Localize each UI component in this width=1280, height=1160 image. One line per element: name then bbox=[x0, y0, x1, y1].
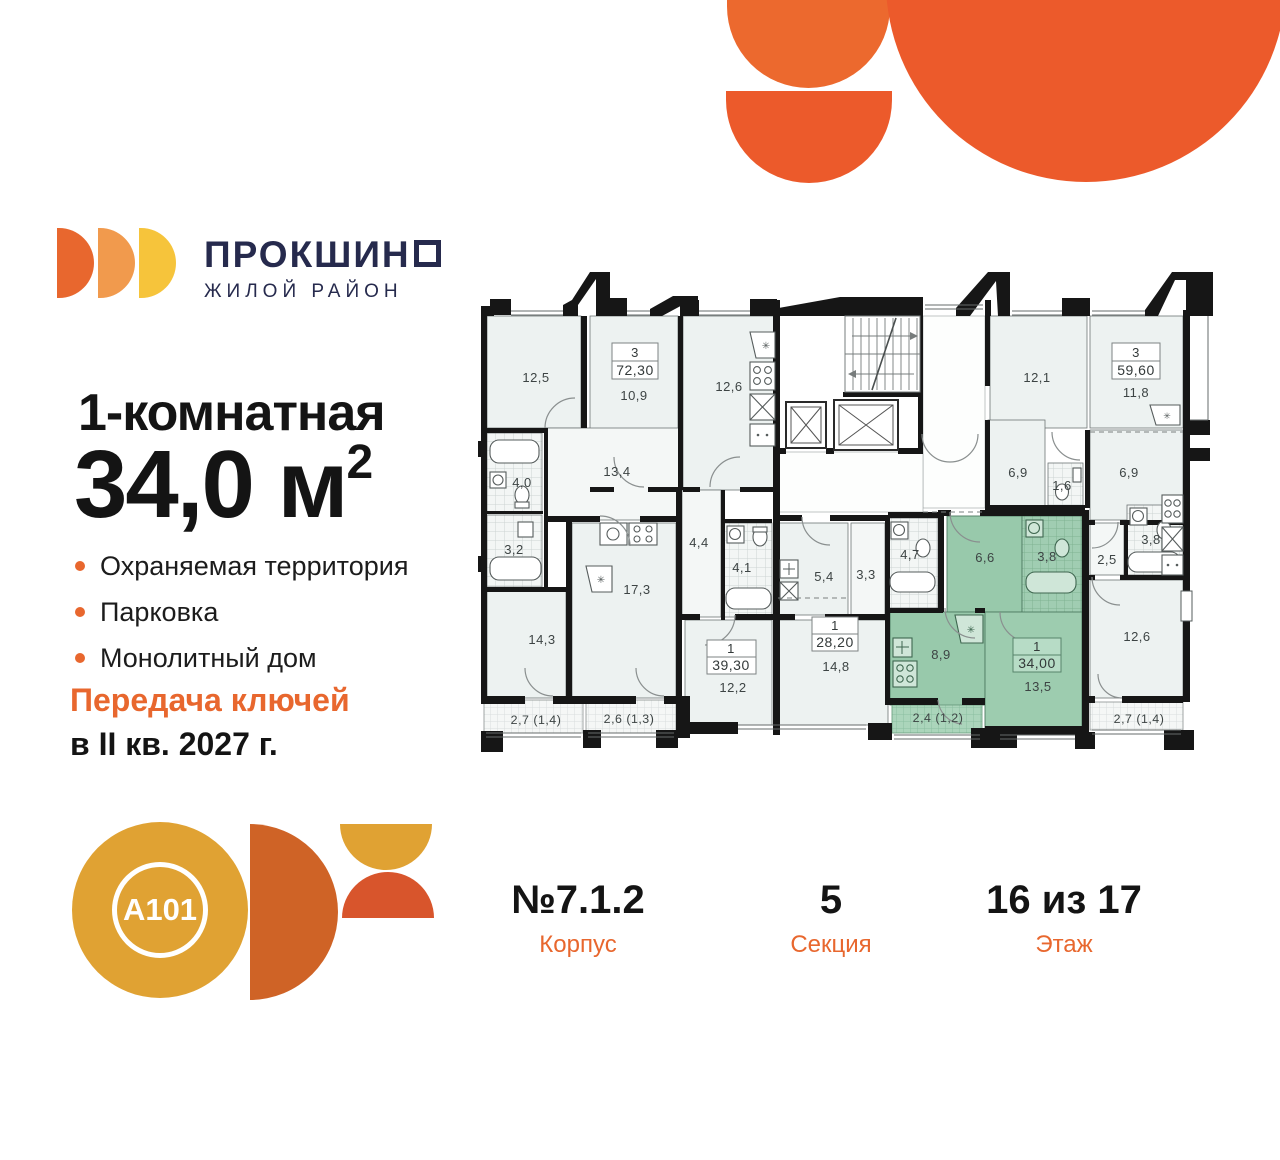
svg-text:2,5: 2,5 bbox=[1097, 552, 1117, 567]
svg-text:3: 3 bbox=[631, 345, 639, 360]
svg-text:12,6: 12,6 bbox=[715, 379, 742, 394]
svg-text:✳: ✳ bbox=[597, 575, 605, 586]
svg-text:1: 1 bbox=[1033, 639, 1041, 654]
a101-bowl-shape bbox=[340, 824, 432, 870]
logo-d-yellow bbox=[139, 228, 176, 298]
svg-text:1: 1 bbox=[831, 618, 839, 633]
svg-text:10,9: 10,9 bbox=[620, 388, 647, 403]
logo-d-orange bbox=[57, 228, 94, 298]
svg-text:12,6: 12,6 bbox=[1123, 629, 1150, 644]
building-value: №7.1.2 bbox=[478, 878, 678, 922]
a101-ring: A101 bbox=[112, 862, 208, 958]
logo-d-light-orange bbox=[98, 228, 135, 298]
svg-text:1,6: 1,6 bbox=[1052, 478, 1072, 493]
svg-text:4,7: 4,7 bbox=[900, 547, 920, 562]
svg-text:6,6: 6,6 bbox=[975, 550, 995, 565]
svg-text:3,8: 3,8 bbox=[1037, 549, 1057, 564]
svg-text:14,8: 14,8 bbox=[822, 659, 849, 674]
svg-text:✳: ✳ bbox=[762, 341, 770, 352]
stairwell bbox=[845, 316, 920, 392]
elevators bbox=[786, 400, 898, 450]
svg-text:34,00: 34,00 bbox=[1018, 655, 1056, 671]
svg-text:4,1: 4,1 bbox=[732, 560, 752, 575]
decor-halfcircle-small bbox=[727, 0, 890, 88]
unit-label-59: 3 59,60 bbox=[1112, 343, 1160, 379]
svg-text:3,8: 3,8 bbox=[1141, 532, 1161, 547]
svg-text:6,9: 6,9 bbox=[1119, 465, 1139, 480]
prokshino-logo: ПРОКШИН ЖИЛОЙ РАЙОН bbox=[57, 228, 441, 303]
svg-text:2,7 (1,4): 2,7 (1,4) bbox=[1114, 712, 1165, 726]
svg-text:3: 3 bbox=[1132, 345, 1140, 360]
info-section: 5 Секция bbox=[731, 878, 931, 959]
bullet-icon bbox=[75, 561, 85, 571]
floor-value: 16 из 17 bbox=[958, 878, 1170, 922]
svg-text:11,8: 11,8 bbox=[1123, 385, 1149, 400]
decor-circle-large bbox=[886, 0, 1280, 182]
a101-logo: A101 bbox=[72, 821, 442, 1007]
bullet-icon bbox=[75, 653, 85, 663]
unit-label-39: 1 39,30 bbox=[707, 640, 756, 674]
info-floor: 16 из 17 Этаж bbox=[958, 878, 1170, 959]
svg-text:✳: ✳ bbox=[967, 625, 975, 636]
svg-text:✳: ✳ bbox=[1163, 411, 1171, 421]
svg-text:39,30: 39,30 bbox=[712, 657, 750, 673]
unit-label-72: 3 72,30 bbox=[612, 343, 658, 379]
a101-dome-shape bbox=[342, 872, 434, 918]
area-value: 34,0 м2 bbox=[74, 432, 371, 538]
svg-text:3,2: 3,2 bbox=[504, 542, 524, 557]
info-building: №7.1.2 Корпус bbox=[478, 878, 678, 959]
brand-subtitle: ЖИЛОЙ РАЙОН bbox=[204, 281, 441, 303]
handover-label: Передача ключей bbox=[70, 682, 350, 719]
svg-text:2,7 (1,4): 2,7 (1,4) bbox=[511, 713, 562, 727]
unit-label-28: 1 28,20 bbox=[812, 617, 858, 651]
feature-item: Монолитный дом bbox=[75, 635, 408, 681]
svg-text:8,9: 8,9 bbox=[931, 647, 951, 662]
logo-d-shapes bbox=[57, 228, 176, 298]
brand-name: ПРОКШИН bbox=[204, 236, 441, 273]
a101-halfcircle bbox=[250, 824, 338, 1000]
svg-text:5,4: 5,4 bbox=[814, 569, 834, 584]
bullet-icon bbox=[75, 607, 85, 617]
section-label: Секция bbox=[731, 931, 931, 959]
listing-card: ПРОКШИН ЖИЛОЙ РАЙОН 1-комнатная 34,0 м2 … bbox=[0, 0, 1280, 1160]
svg-text:12,2: 12,2 bbox=[719, 680, 746, 695]
svg-text:2,4 (1,2): 2,4 (1,2) bbox=[913, 711, 964, 725]
brand-square-o bbox=[414, 240, 441, 267]
floor-plan: ✳ ✳ bbox=[478, 268, 1214, 765]
svg-text:14,3: 14,3 bbox=[528, 632, 555, 647]
svg-text:13,4: 13,4 bbox=[603, 464, 630, 479]
decor-halfcircle-medium bbox=[726, 91, 892, 183]
svg-text:3,3: 3,3 bbox=[856, 567, 876, 582]
handover-date: в II кв. 2027 г. bbox=[70, 726, 278, 763]
svg-text:2,6 (1,3): 2,6 (1,3) bbox=[604, 712, 655, 726]
svg-text:1: 1 bbox=[727, 641, 735, 656]
svg-text:28,20: 28,20 bbox=[816, 634, 854, 650]
svg-text:72,30: 72,30 bbox=[616, 362, 654, 378]
svg-text:6,9: 6,9 bbox=[1008, 465, 1028, 480]
floor-label: Этаж bbox=[958, 931, 1170, 959]
svg-text:59,60: 59,60 bbox=[1117, 362, 1155, 378]
feature-item: Парковка bbox=[75, 589, 408, 635]
building-label: Корпус bbox=[478, 931, 678, 959]
feature-list: Охраняемая территория Парковка Монолитны… bbox=[75, 543, 408, 681]
svg-text:4,0: 4,0 bbox=[512, 475, 532, 490]
svg-text:12,1: 12,1 bbox=[1023, 370, 1050, 385]
svg-text:12,5: 12,5 bbox=[522, 370, 549, 385]
feature-item: Охраняемая территория bbox=[75, 543, 408, 589]
svg-text:13,5: 13,5 bbox=[1024, 679, 1051, 694]
svg-text:4,4: 4,4 bbox=[689, 535, 709, 550]
unit-label-34-highlighted: 1 34,00 bbox=[1013, 638, 1061, 672]
svg-text:17,3: 17,3 bbox=[623, 582, 650, 597]
section-value: 5 bbox=[731, 878, 931, 922]
